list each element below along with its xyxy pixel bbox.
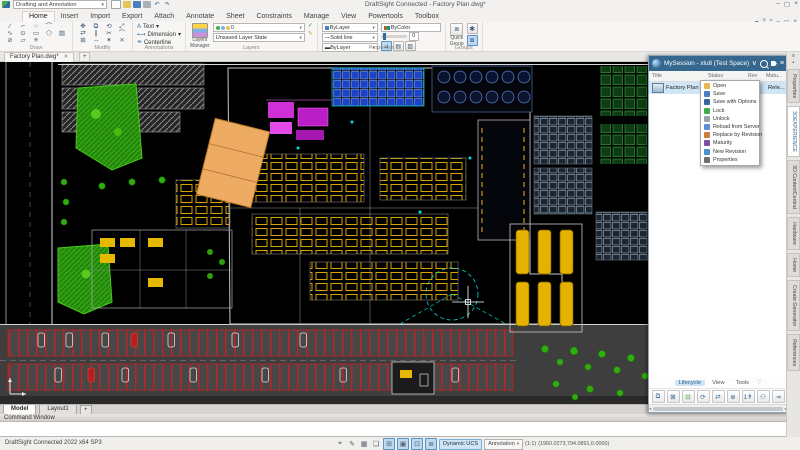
minimize-button[interactable]: –: [776, 0, 780, 8]
tab-sheet[interactable]: Sheet: [220, 12, 250, 22]
menu-item-unlock[interactable]: Unlock: [701, 115, 759, 123]
ribbon-tab-row: Home Insert Import Export Attach Annotat…: [0, 9, 800, 22]
panel-bottom-tabs: Lifecycle View Tools ♡: [649, 377, 787, 388]
hatch-tool-icon[interactable]: ▨: [56, 30, 68, 37]
polyline-tool-icon[interactable]: ⌐: [17, 23, 29, 30]
tab-attach[interactable]: Attach: [148, 12, 180, 22]
menu-item-properties[interactable]: Properties: [701, 156, 759, 164]
line-style-label: Solid line: [330, 35, 352, 41]
unlock-icon: [704, 116, 710, 122]
palette-tab-home[interactable]: Home: [787, 253, 800, 277]
lock-icon: [704, 108, 710, 114]
tab-toolbox[interactable]: Toolbox: [409, 12, 445, 22]
replace-by-revision-icon: [704, 132, 710, 138]
pen-icon[interactable]: ✎: [347, 439, 357, 449]
tab-tools[interactable]: Tools: [732, 380, 754, 386]
tab-export[interactable]: Export: [116, 12, 148, 22]
transparency-slider[interactable]: [381, 35, 407, 38]
new-revision-icon: [704, 149, 710, 155]
text-button[interactable]: A Text ▾: [137, 23, 181, 30]
session-stack-icon[interactable]: ⧉: [652, 390, 665, 403]
annotations-group-label: Annotations: [133, 45, 185, 51]
ribbon-group-properties: ByLayer ▾ — Solid line ▾ ▬ ByLayer ▾ ByC…: [318, 22, 446, 51]
esnap-toggle-icon[interactable]: ▣: [397, 438, 409, 450]
palette-tab-3dexperience[interactable]: 3DEXPERIENCE: [787, 106, 800, 157]
mysession-header: MySession - xlu8 (Test Space) (... ∨ ≡: [649, 56, 787, 71]
pointer-icon[interactable]: ⌖: [335, 439, 345, 449]
comment-icon[interactable]: ❏: [371, 439, 381, 449]
spline-tool-icon[interactable]: ∿: [4, 30, 16, 37]
palette-tab-properties[interactable]: Properties: [787, 69, 800, 103]
sheet-tab-model[interactable]: Model: [3, 405, 36, 415]
tag-icon[interactable]: [771, 61, 777, 66]
add-sheet-button[interactable]: +: [80, 405, 92, 415]
scale-ratio-label: (1:1): [525, 441, 536, 447]
row-maturity: Rele...: [768, 85, 787, 91]
document-tab-factory-plan[interactable]: Factory Plan.dwg* ✕: [4, 52, 74, 62]
ribbon-group-annotations: A Text ▾ ⟷ Dimension ▾ ⌯ Centerline Anno…: [133, 22, 186, 51]
layer-state-dropdown[interactable]: Unsaved Layer State ▾: [213, 33, 305, 42]
layer-state-label: Unsaved Layer State: [216, 35, 267, 41]
scroll-left-icon[interactable]: ◂: [649, 406, 651, 412]
copy-tool-icon[interactable]: ⧉: [90, 23, 102, 30]
menu-item-save-with-options[interactable]: Save with Options: [701, 98, 759, 106]
document-tab-label: Factory Plan.dwg*: [10, 54, 59, 60]
replace-by-revision-icon[interactable]: ⇄: [712, 390, 725, 403]
offset-tool-icon[interactable]: ∥: [90, 30, 102, 37]
new-file-icon[interactable]: [111, 0, 121, 9]
close-document-icon[interactable]: ✕: [64, 54, 69, 60]
search-icon[interactable]: [760, 60, 768, 68]
draftsight-logo-icon: [2, 1, 10, 8]
unlock-icon[interactable]: ⊡: [682, 390, 695, 403]
ribbon-group-modify: ✥ ⧉ ⟲ ⤢ ⇄ ∥ ✂ ⌒ ⊞ ↔ ✶ ⨯ Modify: [73, 22, 133, 51]
menu-item-save[interactable]: Save: [701, 90, 759, 98]
storage-tanks: [432, 66, 532, 112]
dimension-icon: ⟷: [137, 31, 146, 38]
move-tool-icon[interactable]: ✥: [77, 23, 89, 30]
window-controls: – ▢ ×: [776, 0, 798, 8]
edit-group-icon[interactable]: ✱: [467, 23, 478, 34]
hatch-color-dropdown[interactable]: ByColor: [381, 23, 441, 32]
reload-from-server-icon: [704, 124, 710, 130]
tab-view[interactable]: View: [708, 380, 728, 386]
save-icon[interactable]: [133, 1, 141, 8]
layers-group-label: Layers: [186, 45, 317, 51]
chevron-down-icon: ▾: [297, 25, 301, 31]
menu-item-replace-by-revision[interactable]: Replace by Revision: [701, 131, 759, 139]
pattern-tool-icon[interactable]: ⊞: [77, 37, 89, 44]
open-icon: [704, 83, 710, 89]
print-icon[interactable]: [143, 1, 151, 8]
rectangle-tool-icon[interactable]: ▭: [30, 30, 42, 37]
ribbon-group-layers: Layers Manager 0 ▾ Unsaved Layer State ▾…: [186, 22, 318, 51]
chevron-down-icon: ▾: [101, 2, 104, 8]
palette-tab-hardware[interactable]: Hardware: [787, 217, 800, 250]
tab-manage[interactable]: Manage: [298, 12, 335, 22]
mysession-title: MySession - xlu8 (Test Space) (...: [664, 60, 749, 67]
scrollbar-thumb[interactable]: [653, 407, 782, 411]
fillet-tool-icon[interactable]: ⌒: [116, 30, 128, 37]
annotation-scale-label: Annotation: [488, 441, 515, 447]
color-swatch-icon: [325, 26, 329, 30]
collaborators-icon[interactable]: ⚇: [757, 390, 770, 403]
chevron-down-icon: ▾: [156, 23, 159, 30]
layer-freeze-icon: [221, 26, 225, 30]
column-rev[interactable]: Rev: [745, 73, 763, 79]
line-color-dropdown[interactable]: ByLayer ▾: [322, 23, 378, 32]
open-file-icon[interactable]: [123, 1, 131, 8]
scale-tool-icon[interactable]: ⤢: [116, 23, 128, 30]
chevron-down-icon: ▾: [178, 31, 181, 38]
column-title[interactable]: Title: [649, 73, 705, 79]
column-status[interactable]: Status: [705, 73, 745, 79]
new-document-tab-button[interactable]: +: [79, 52, 90, 62]
panel-horizontal-scrollbar[interactable]: ◂ ▸: [649, 404, 787, 412]
coordinates-readout: (1960.0273,794.0891,0.0000): [538, 441, 609, 447]
command-input[interactable]: [0, 422, 800, 437]
mirror-tool-icon[interactable]: ⇄: [77, 30, 89, 37]
annotation-scale-dropdown[interactable]: Annotation ▾: [484, 439, 523, 450]
text-icon: A: [137, 24, 141, 30]
draftsight-window: Drafting and Annotation ▾ ↶ ↷ DraftSight…: [0, 0, 800, 450]
bycolor-swatch-icon: [384, 26, 390, 30]
ribbon: ∕ ⌐ ○ ⌒ · ∿ ⊙ ▭ ⬠ ▨ ⊘ ▱ ✳ Draw ✥ ⧉ ⟲ ⤢: [0, 22, 800, 52]
close-button[interactable]: ×: [794, 0, 798, 8]
hatch-color-label: ByColor: [391, 25, 411, 31]
sheet-tab-layout1[interactable]: Layout1: [39, 405, 76, 415]
menu-icon[interactable]: ≡: [780, 59, 784, 68]
3dexperience-compass-icon[interactable]: [652, 59, 661, 68]
menu-item-open[interactable]: Open: [701, 82, 759, 90]
modify-group-label: Modify: [73, 45, 132, 51]
tab-powertools[interactable]: Powertools: [362, 12, 409, 22]
chevron-down-icon: ▾: [370, 25, 374, 31]
undo-icon[interactable]: ↶: [153, 1, 161, 8]
layer-lock-icon: [226, 26, 230, 30]
ribbon-group-draw: ∕ ⌐ ○ ⌒ · ∿ ⊙ ▭ ⬠ ▨ ⊘ ▱ ✳ Draw: [0, 22, 73, 51]
properties-group-label: Properties: [318, 45, 445, 51]
groups-group-label: Groups: [446, 45, 482, 51]
maturity-icon[interactable]: ⊕: [727, 390, 740, 403]
modify-tools: ✥ ⧉ ⟲ ⤢ ⇄ ∥ ✂ ⌒ ⊞ ↔ ✶ ⨯: [77, 23, 128, 44]
draw-tools: ∕ ⌐ ○ ⌒ · ∿ ⊙ ▭ ⬠ ▨ ⊘ ▱ ✳: [4, 23, 68, 44]
layers-manager-icon: [192, 23, 208, 38]
command-window-header[interactable]: Command Window: [0, 414, 800, 422]
layer-on-icon: [216, 26, 220, 30]
context-menu: Open Save Save with Options Lock Unlock …: [700, 80, 760, 166]
trim-tool-icon[interactable]: ✂: [103, 30, 115, 37]
dimension-label: Dimension: [148, 32, 176, 38]
palette-menu-icon[interactable]: ≡: [792, 53, 795, 59]
favorites-icon[interactable]: ♡: [756, 379, 761, 386]
palette-pin-icon[interactable]: ▪: [793, 60, 795, 66]
tab-insert[interactable]: Insert: [55, 12, 85, 22]
chevron-down-icon: ▾: [370, 35, 374, 41]
palette-tab-create-generator[interactable]: Create Generator: [787, 280, 800, 331]
workspace-label: Drafting and Annotation: [16, 2, 77, 8]
save-icon: [704, 91, 710, 97]
line-color-label: ByLayer: [330, 25, 350, 31]
active-layer-dropdown[interactable]: 0 ▾: [213, 23, 305, 32]
menu-item-lock[interactable]: Lock: [701, 107, 759, 115]
drawing-thumbnail-icon: [652, 83, 664, 93]
ellipse-tool-icon[interactable]: ⊙: [17, 30, 29, 37]
warehouse-hall: [478, 120, 530, 240]
redo-icon[interactable]: ↷: [163, 1, 171, 8]
lifecycle-toolbar: ⧉ ⊠ ⊡ ⟳ ⇄ ⊕ 1↟ ⚇ ⇥: [649, 388, 787, 404]
tab-constraints[interactable]: Constraints: [250, 12, 297, 22]
polygon-tool-icon[interactable]: ⬠: [43, 30, 55, 37]
grid-icon[interactable]: ▦: [359, 439, 369, 449]
stretch-tool-icon[interactable]: ↔: [90, 37, 102, 44]
dynamic-ucs-button[interactable]: Dynamic UCS: [439, 439, 482, 450]
circle-tool-icon[interactable]: ○: [30, 23, 42, 30]
palette-tab-3dcontentcentral[interactable]: 3D ContentCentral: [787, 160, 800, 214]
lock-icon[interactable]: ⊠: [667, 390, 680, 403]
chevron-down-icon[interactable]: ∨: [752, 59, 757, 68]
maturity-icon: [704, 140, 710, 146]
point-tool-icon[interactable]: ·: [56, 23, 68, 30]
command-window-title: Command Window: [4, 415, 55, 421]
etrack-toggle-icon[interactable]: ⊡: [411, 438, 423, 450]
lineweight-toggle-icon[interactable]: ≣: [425, 438, 437, 450]
tab-import[interactable]: Import: [84, 12, 116, 22]
palette-tab-references[interactable]: References: [787, 334, 800, 371]
layer-preview-on-icon[interactable]: ✓: [308, 23, 313, 30]
rotate-tool-icon[interactable]: ⟲: [103, 23, 115, 30]
ribbon-group-groups: ⧈ Quick Group ✱ ⧇ Groups: [446, 22, 483, 51]
menu-item-maturity[interactable]: Maturity: [701, 139, 759, 147]
draw-group-label: Draw: [0, 45, 72, 51]
restore-button[interactable]: ▢: [784, 0, 790, 8]
quick-access-toolbar: ↶ ↷: [111, 0, 171, 9]
quick-group-button[interactable]: ⧈ Quick Group: [450, 23, 464, 47]
title-bar: Drafting and Annotation ▾ ↶ ↷ DraftSight…: [0, 0, 800, 9]
status-bar: DraftSight Connected 2022 x64 SP3 ⌖ ✎ ▦ …: [0, 437, 800, 450]
palette-tab-strip: ≡ ▪ Properties 3DEXPERIENCE 3D ContentCe…: [786, 52, 800, 437]
window-title: DraftSight Connected - Factory Plan.dwg*: [365, 1, 486, 8]
tab-annotate[interactable]: Annotate: [180, 12, 220, 22]
gatehouse: [392, 362, 434, 394]
ray-tool-icon[interactable]: ⊘: [4, 37, 16, 44]
transparency-value: 0: [409, 32, 419, 41]
reload-from-server-icon[interactable]: ⟳: [697, 390, 710, 403]
menu-item-reload-from-server[interactable]: Reload from Server: [701, 123, 759, 131]
properties-icon: [704, 157, 710, 163]
tab-view[interactable]: View: [335, 12, 362, 22]
chevron-down-icon: ▾: [517, 441, 519, 447]
tab-lifecycle[interactable]: Lifecycle: [675, 380, 706, 386]
arc-tool-icon[interactable]: ⌒: [43, 23, 55, 30]
column-maturity[interactable]: Matu...: [763, 73, 787, 79]
text-label: Text: [143, 24, 154, 30]
chevron-down-icon: ▾: [297, 35, 301, 41]
explode-tool-icon[interactable]: ✶: [103, 37, 115, 44]
snap-toggle-icon[interactable]: ⊞: [383, 438, 395, 450]
menu-item-new-revision[interactable]: New Revision: [701, 148, 759, 156]
workspace-selector[interactable]: Drafting and Annotation ▾: [13, 0, 107, 9]
block-tool-icon[interactable]: ✳: [30, 37, 42, 44]
region-tool-icon[interactable]: ▱: [17, 37, 29, 44]
status-toggles: ⌖ ✎ ▦ ❏ ⊞ ▣ ⊡ ≣ Dynamic UCS Annotation ▾…: [335, 438, 609, 450]
exit-session-icon[interactable]: ⇥: [772, 390, 785, 403]
app-version-label: DraftSight Connected 2022 x64 SP3: [5, 440, 102, 446]
dimension-button[interactable]: ⟷ Dimension ▾: [137, 31, 181, 38]
new-revision-icon[interactable]: 1↟: [742, 390, 755, 403]
erase-tool-icon[interactable]: ⨯: [116, 37, 128, 44]
save-with-options-icon: [704, 99, 710, 105]
line-style-dropdown[interactable]: — Solid line ▾: [322, 33, 378, 42]
current-layer-label: 0: [231, 25, 234, 31]
tab-home[interactable]: Home: [22, 11, 55, 22]
isolate-layer-icon[interactable]: ✎: [308, 31, 313, 38]
line-tool-icon[interactable]: ∕: [4, 23, 16, 30]
